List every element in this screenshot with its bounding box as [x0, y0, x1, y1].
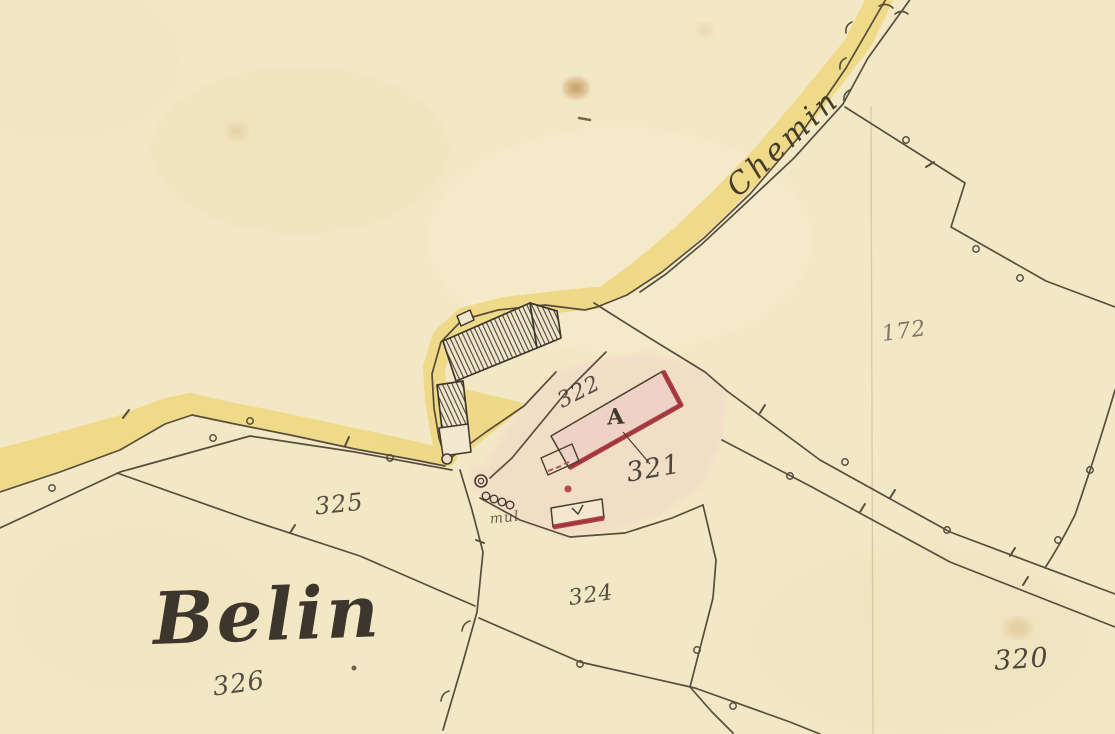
red-speck — [565, 486, 572, 493]
annotation-mul: mul — [489, 509, 520, 528]
map-stage: Belin Chemin 326 325 324 321 322 172 320… — [0, 0, 1115, 734]
building-letter-A: A — [605, 403, 626, 430]
place-label-belin: Belin — [149, 568, 383, 661]
building-hatched-small — [437, 381, 468, 429]
parcel-label-320: 320 — [993, 642, 1050, 677]
parcel-label-325: 325 — [313, 488, 364, 521]
building-annex-square — [439, 424, 471, 456]
cadastral-map: Belin Chemin 326 325 324 321 322 172 320… — [0, 0, 1115, 734]
